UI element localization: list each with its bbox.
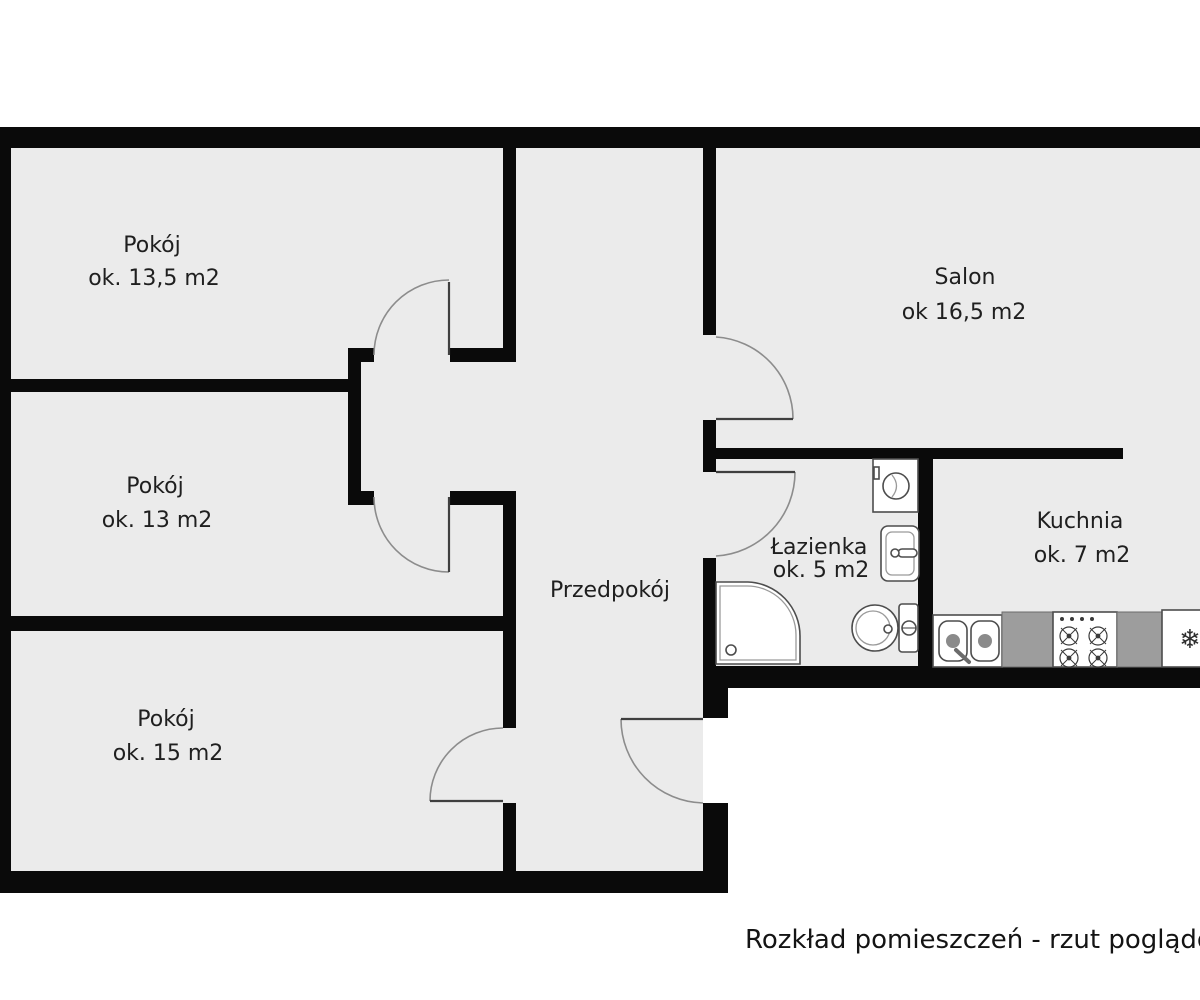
counter — [1002, 612, 1053, 667]
burner — [1089, 649, 1107, 667]
salon-name-label: Salon — [935, 265, 996, 290]
wall-segment — [0, 127, 11, 893]
burner — [1060, 627, 1078, 645]
wall-segment — [703, 420, 716, 472]
wall-segment — [348, 348, 361, 505]
wall-segment — [918, 448, 933, 666]
plan-caption: Rozkład pomieszczeń - rzut poglądow — [745, 925, 1200, 955]
washbasin-icon — [881, 526, 919, 581]
wall-segment — [0, 616, 516, 631]
wall-segment — [0, 127, 1200, 148]
snowflake-icon: ❄ — [1179, 625, 1200, 655]
room1-area-label: ok. 13,5 m2 — [88, 266, 220, 291]
stove-icon — [1053, 612, 1117, 667]
room1-name-label: Pokój — [123, 233, 180, 258]
burner — [1060, 649, 1078, 667]
toilet-icon — [852, 604, 918, 652]
washing-machine-icon — [873, 459, 918, 512]
wall-segment — [503, 803, 516, 871]
wall-segment — [0, 379, 352, 392]
salon-area-label: ok 16,5 m2 — [902, 300, 1027, 325]
counter — [1117, 612, 1162, 667]
wall-segment — [503, 148, 516, 362]
floor-plan: ❄ Pokój ok. 13,5 m2 — [0, 0, 1200, 1000]
room3-area-label: ok. 15 m2 — [113, 741, 224, 766]
floor-right-wing — [703, 148, 1200, 666]
wall-segment — [703, 666, 1200, 688]
burner — [1089, 627, 1107, 645]
wall-segment — [348, 348, 374, 362]
kitchen-fixtures: ❄ — [933, 610, 1200, 667]
wall-segment — [703, 448, 1123, 459]
wall-segment — [348, 491, 374, 505]
wall-segment — [703, 803, 728, 893]
bath-name-label: Łazienka — [770, 535, 868, 560]
wall-segment — [703, 148, 716, 335]
room2-area-label: ok. 13 m2 — [102, 508, 213, 533]
wall-segment — [0, 871, 728, 893]
room2-name-label: Pokój — [126, 474, 183, 499]
kitchen-name-label: Kuchnia — [1037, 509, 1124, 534]
bath-area-label: ok. 5 m2 — [773, 558, 870, 583]
wall-segment — [503, 491, 516, 728]
fridge-icon: ❄ — [1162, 610, 1200, 667]
hall-name-label: Przedpokój — [550, 578, 670, 603]
kitchen-area-label: ok. 7 m2 — [1034, 543, 1131, 568]
floor-plan-canvas: ❄ Pokój ok. 13,5 m2 — [0, 0, 1200, 1000]
wall-segment — [703, 688, 728, 718]
kitchen-sink-icon — [933, 615, 1002, 667]
room3-name-label: Pokój — [137, 707, 194, 732]
wall-segment — [703, 558, 716, 666]
